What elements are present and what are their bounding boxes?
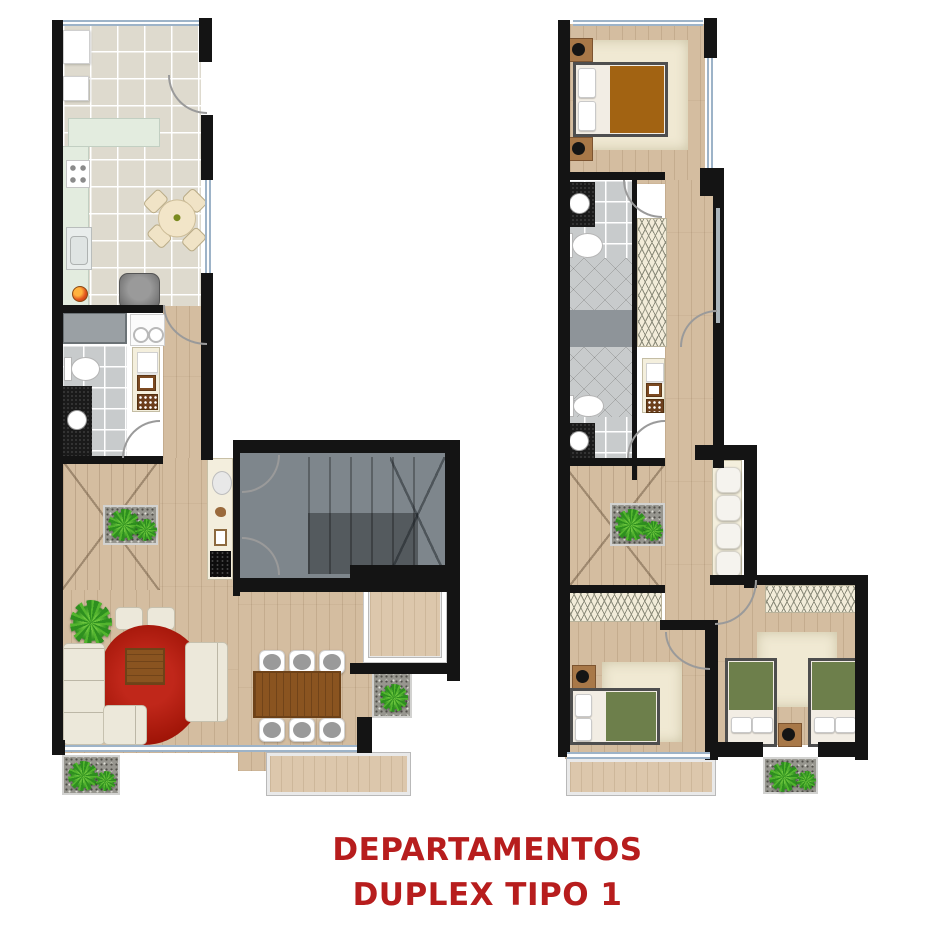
- wall: [744, 455, 757, 588]
- closet-rod: [567, 592, 662, 622]
- dining-chair: [259, 718, 285, 742]
- balcony-room-frame: [363, 583, 447, 663]
- wall: [201, 115, 213, 180]
- plant-icon: [797, 771, 816, 790]
- window: [573, 20, 703, 26]
- toilet-icon: [566, 395, 604, 417]
- wall: [855, 575, 868, 760]
- floorplan-sheet: DEPARTAMENTOS DUPLEX TIPO 1: [0, 0, 925, 927]
- title-line2: DUPLEX TIPO 1: [50, 873, 925, 918]
- wall: [233, 440, 240, 596]
- wall: [62, 305, 163, 313]
- wall: [558, 20, 570, 757]
- sofa-long: [63, 643, 105, 745]
- closet-rod: [637, 218, 667, 347]
- balcony2-floor: [567, 759, 715, 795]
- sofa-chaise: [103, 705, 147, 745]
- kitchen-counter-top: [68, 118, 160, 147]
- dining-chair: [289, 718, 315, 742]
- terrace-floor: [267, 753, 410, 795]
- wine-rack-icon: [646, 399, 664, 413]
- closet-rod: [765, 585, 863, 613]
- window: [716, 208, 720, 323]
- stair-planter: [103, 505, 158, 545]
- wall: [53, 740, 65, 755]
- window: [567, 752, 710, 759]
- floor-plant-icon: [70, 600, 112, 646]
- wall: [563, 172, 665, 180]
- decor-icon: [215, 507, 226, 517]
- coffee-table: [125, 648, 165, 685]
- shower1-mat: [563, 310, 632, 347]
- linen-cabinet: [642, 358, 665, 413]
- wine-rack-icon: [137, 394, 158, 410]
- balcony-room-floor: [369, 589, 441, 657]
- door-arc-icon: [122, 420, 160, 458]
- window: [63, 20, 200, 26]
- washer-dryer: [130, 314, 165, 346]
- nightstand: [778, 723, 802, 747]
- wall: [565, 458, 665, 466]
- toilet-icon: [565, 233, 603, 258]
- picture-frame-icon: [214, 529, 227, 546]
- dining-chair: [319, 718, 345, 742]
- towel-stack: [137, 352, 158, 373]
- sink-icon: [569, 193, 590, 214]
- plant-icon: [380, 684, 408, 712]
- wall: [818, 742, 868, 757]
- loveseat: [185, 642, 228, 722]
- plant-icon: [135, 519, 157, 541]
- wall: [350, 663, 460, 674]
- wall: [201, 273, 213, 460]
- window-planter: [763, 757, 818, 794]
- stove-icon: [66, 160, 90, 188]
- tv-console: [207, 458, 233, 580]
- title-line1: DEPARTAMENTOS: [50, 828, 925, 873]
- upper-hallway-floor: [665, 180, 713, 648]
- wall: [565, 585, 665, 593]
- nightstand: [568, 137, 593, 161]
- appliance-icon: [646, 383, 662, 397]
- fridge: [63, 30, 90, 64]
- wall: [350, 565, 460, 583]
- side-planter: [372, 672, 412, 718]
- first-floor-plan: [45, 18, 463, 800]
- wall: [199, 18, 212, 62]
- lamp-icon: [212, 471, 232, 495]
- bed3-left: [725, 658, 777, 747]
- nightstand: [568, 38, 593, 62]
- wall: [704, 18, 717, 58]
- nightstand: [572, 665, 596, 690]
- towel-stack: [646, 363, 664, 382]
- wall: [715, 742, 763, 757]
- dining-table: [253, 671, 341, 718]
- stair-planter: [610, 503, 665, 546]
- sheet-title: DEPARTAMENTOS DUPLEX TIPO 1: [50, 828, 925, 918]
- hall-cabinet: [132, 347, 160, 412]
- linen-shelf: [712, 460, 742, 578]
- wall: [240, 440, 445, 453]
- plant-icon: [96, 771, 116, 791]
- plant-icon: [769, 762, 799, 792]
- plant-icon: [643, 521, 663, 541]
- laundry-closet: [62, 312, 127, 344]
- bed2: [570, 688, 660, 745]
- wall: [52, 20, 63, 755]
- bed3-right: [808, 658, 860, 747]
- second-floor-plan: [550, 18, 872, 800]
- toilet-icon: [64, 357, 100, 381]
- fruit-bowl-icon: [72, 286, 88, 302]
- window: [65, 745, 357, 752]
- sink-icon: [67, 410, 87, 430]
- wall: [357, 717, 372, 753]
- shower1: [563, 258, 632, 310]
- plant-icon: [68, 761, 98, 791]
- plant-icon: [615, 509, 647, 541]
- oven: [63, 76, 89, 101]
- appliance-icon: [137, 375, 156, 391]
- kitchen-sink: [66, 227, 92, 270]
- sink-icon: [569, 431, 589, 451]
- window: [205, 180, 211, 273]
- front-planter: [62, 755, 120, 795]
- window: [707, 58, 713, 170]
- tv-icon: [210, 551, 231, 577]
- master-bed: [573, 62, 668, 137]
